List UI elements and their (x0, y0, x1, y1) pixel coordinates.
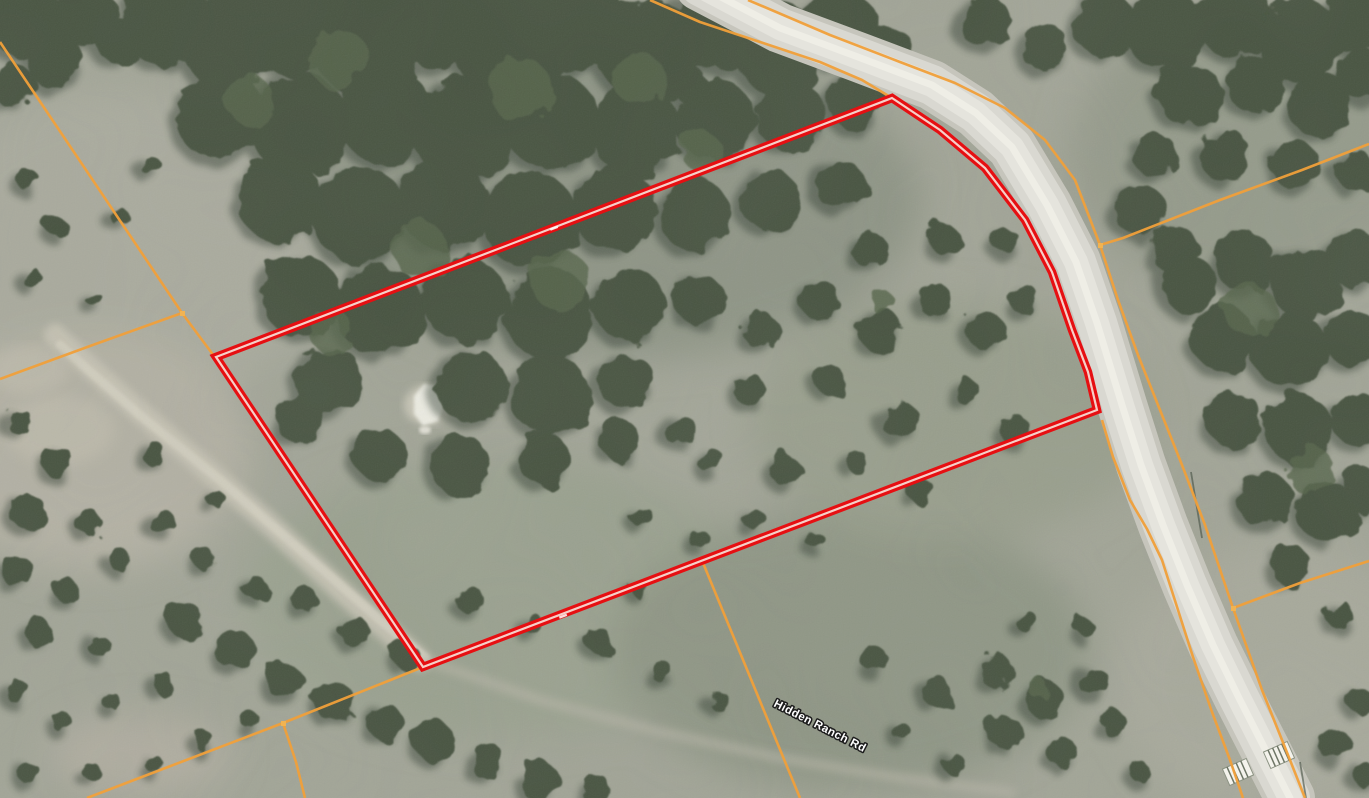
map-viewport[interactable]: Hidden Ranch Rd (0, 0, 1369, 798)
aerial-map[interactable]: Hidden Ranch Rd (0, 0, 1369, 798)
film-grain-overlay (0, 0, 1369, 798)
